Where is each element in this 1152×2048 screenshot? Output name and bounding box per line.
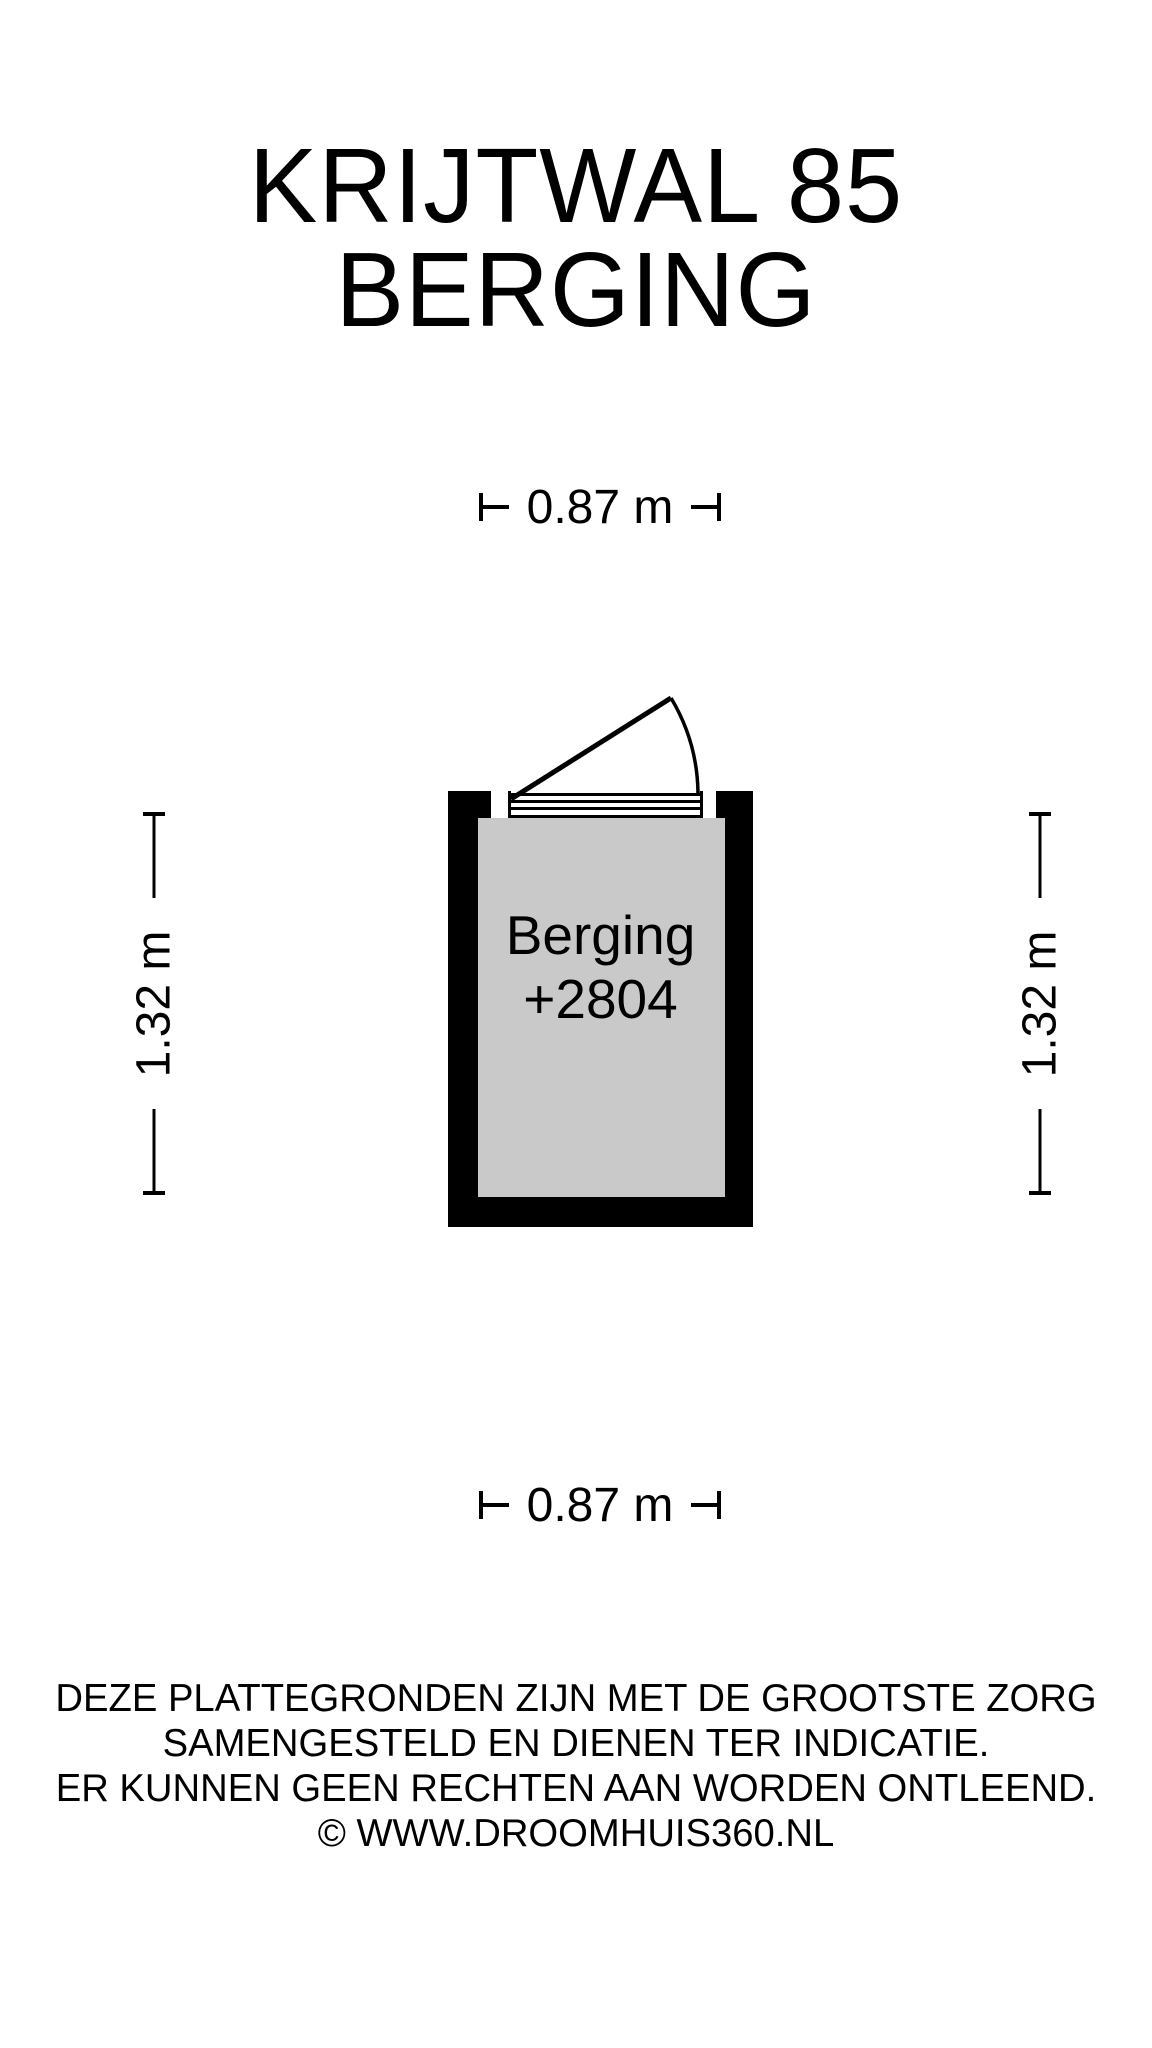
dimension-left-value: 1.32 m: [127, 930, 182, 1077]
page-title: KRIJTWAL 85 BERGING: [17, 134, 1134, 342]
disclaimer-line: DEZE PLATTEGRONDEN ZIJN MET DE GROOTSTE …: [12, 1676, 1141, 1721]
dim-line-segment: [153, 812, 156, 898]
dim-line-segment: [153, 1109, 156, 1195]
dimension-top: 0.87 m: [48, 479, 1152, 535]
title-line-room: BERGING: [17, 238, 1134, 342]
dimension-bottom-value: 0.87 m: [527, 1478, 674, 1533]
dimension-top-value: 0.87 m: [527, 480, 674, 535]
dimension-bottom: 0.87 m: [48, 1477, 1152, 1533]
dim-tick-right-icon: [691, 1491, 721, 1519]
dim-tick-bottom-icon: [143, 1191, 165, 1195]
disclaimer-line: ER KUNNEN GEEN RECHTEN AAN WORDEN ONTLEE…: [12, 1766, 1141, 1811]
dim-line-segment: [1039, 812, 1042, 898]
dimension-right-value: 1.32 m: [1013, 930, 1068, 1077]
dim-tick-bottom-icon: [1029, 1191, 1051, 1195]
disclaimer-line: SAMENGESTELD EN DIENEN TER INDICATIE.: [12, 1721, 1141, 1766]
dimension-right: 1.32 m: [1016, 812, 1064, 1195]
disclaimer-line: © WWW.DROOMHUIS360.NL: [12, 1811, 1141, 1856]
room-level: +2804: [448, 967, 753, 1031]
floorplan-page: KRIJTWAL 85 BERGING 0.87 m 1.32 m 1.32 m: [0, 0, 1152, 2048]
dim-tick-left-icon: [479, 493, 509, 521]
door-swing-icon: [440, 630, 770, 830]
dim-tick-right-icon: [691, 493, 721, 521]
dimension-left: 1.32 m: [130, 812, 178, 1195]
room-label: Berging +2804: [448, 903, 753, 1031]
dim-tick-left-icon: [479, 1491, 509, 1519]
dim-line-segment: [1039, 1109, 1042, 1195]
title-line-address: KRIJTWAL 85: [17, 134, 1134, 238]
disclaimer: DEZE PLATTEGRONDEN ZIJN MET DE GROOTSTE …: [12, 1676, 1141, 1856]
room-name: Berging: [448, 903, 753, 967]
